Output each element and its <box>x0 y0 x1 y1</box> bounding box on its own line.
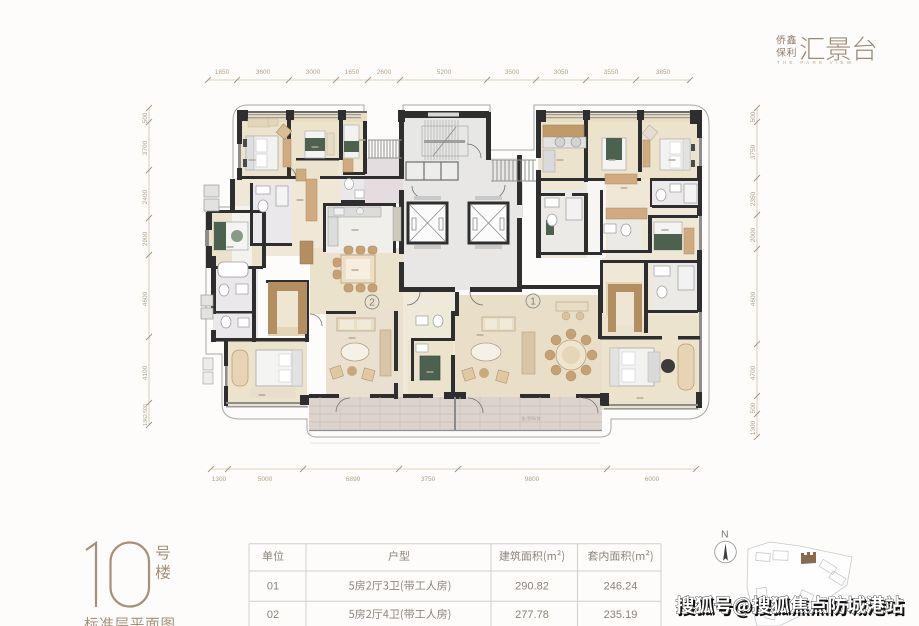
svg-text:2: 2 <box>369 298 375 309</box>
svg-text:9800: 9800 <box>525 476 540 483</box>
svg-text:500: 500 <box>142 112 149 123</box>
svg-text:5200: 5200 <box>437 69 452 76</box>
svg-text:290.82: 290.82 <box>515 581 549 593</box>
svg-text:3750: 3750 <box>750 144 757 159</box>
svg-text:N: N <box>721 529 729 541</box>
svg-text:6000: 6000 <box>645 476 660 483</box>
svg-text:4600: 4600 <box>142 291 149 306</box>
svg-text:3750: 3750 <box>421 476 436 483</box>
svg-text:246.24: 246.24 <box>604 581 638 593</box>
svg-text:3500: 3500 <box>505 69 520 76</box>
svg-text:2600: 2600 <box>377 69 392 76</box>
svg-text:2000: 2000 <box>750 227 757 242</box>
svg-text:3600: 3600 <box>256 69 271 76</box>
svg-text:1650: 1650 <box>345 69 360 76</box>
svg-text:4100: 4100 <box>142 365 149 380</box>
svg-text:500: 500 <box>750 111 757 122</box>
svg-text:1850: 1850 <box>215 69 230 76</box>
svg-text:235.19: 235.19 <box>604 609 638 621</box>
svg-text:3050: 3050 <box>554 69 569 76</box>
svg-text:277.78: 277.78 <box>515 609 549 621</box>
svg-text:1: 1 <box>530 297 536 308</box>
svg-text:3000: 3000 <box>306 69 321 76</box>
svg-text:3700: 3700 <box>142 140 149 155</box>
svg-text:3850: 3850 <box>656 69 671 76</box>
svg-text:3550: 3550 <box>604 69 619 76</box>
svg-text:4600: 4600 <box>750 291 757 306</box>
svg-text:01: 01 <box>267 581 279 593</box>
svg-text:2900: 2900 <box>142 231 149 246</box>
svg-text:4700: 4700 <box>750 365 757 380</box>
svg-text:1300: 1300 <box>212 476 227 483</box>
svg-text:1362.500: 1362.500 <box>143 404 149 426</box>
svg-text:02: 02 <box>267 609 279 621</box>
svg-text:6890: 6890 <box>346 476 361 483</box>
svg-text:500: 500 <box>750 402 757 413</box>
svg-text:2400: 2400 <box>142 189 149 204</box>
svg-text:1300: 1300 <box>750 420 757 435</box>
svg-text:THE PARK VIEW: THE PARK VIEW <box>777 60 854 65</box>
svg-text:5000: 5000 <box>258 476 273 483</box>
svg-text:2350: 2350 <box>750 191 757 206</box>
